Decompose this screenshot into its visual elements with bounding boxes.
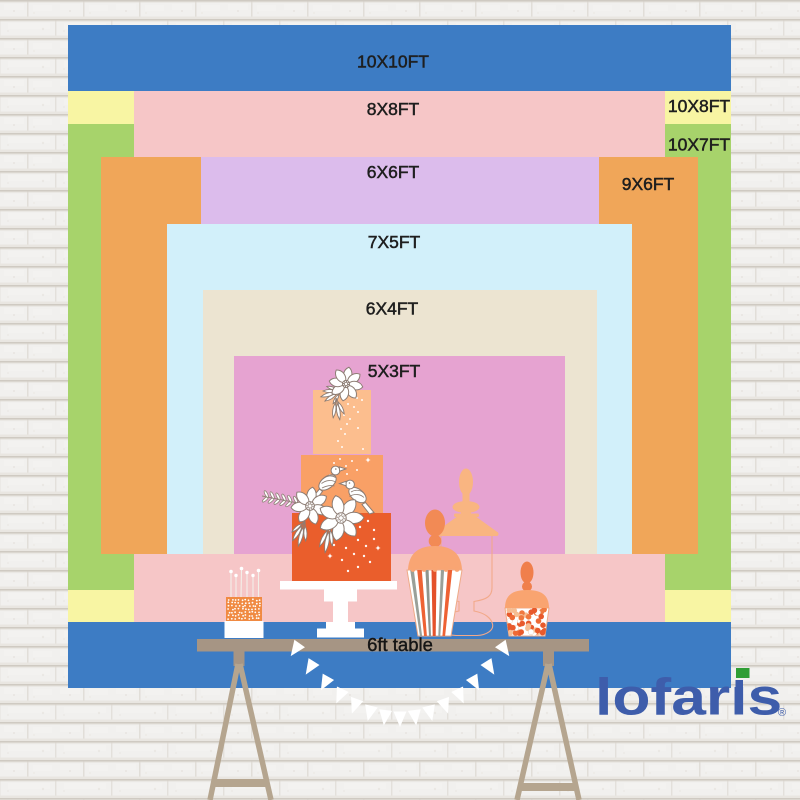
svg-text:10X7FT: 10X7FT bbox=[668, 135, 731, 155]
svg-text:10X10FT: 10X10FT bbox=[357, 52, 429, 72]
svg-text:10X8FT: 10X8FT bbox=[668, 96, 731, 116]
svg-text:5X3FT: 5X3FT bbox=[368, 361, 421, 381]
svg-text:6ft table: 6ft table bbox=[367, 634, 433, 655]
svg-text:6X6FT: 6X6FT bbox=[367, 162, 420, 182]
svg-text:9X6FT: 9X6FT bbox=[622, 174, 675, 194]
svg-text:6X4FT: 6X4FT bbox=[366, 299, 419, 319]
svg-text:7X5FT: 7X5FT bbox=[368, 232, 421, 252]
svg-text:8X8FT: 8X8FT bbox=[367, 99, 420, 119]
svg-text:lofarıs: lofarıs bbox=[595, 668, 782, 726]
svg-text:®: ® bbox=[778, 707, 786, 719]
